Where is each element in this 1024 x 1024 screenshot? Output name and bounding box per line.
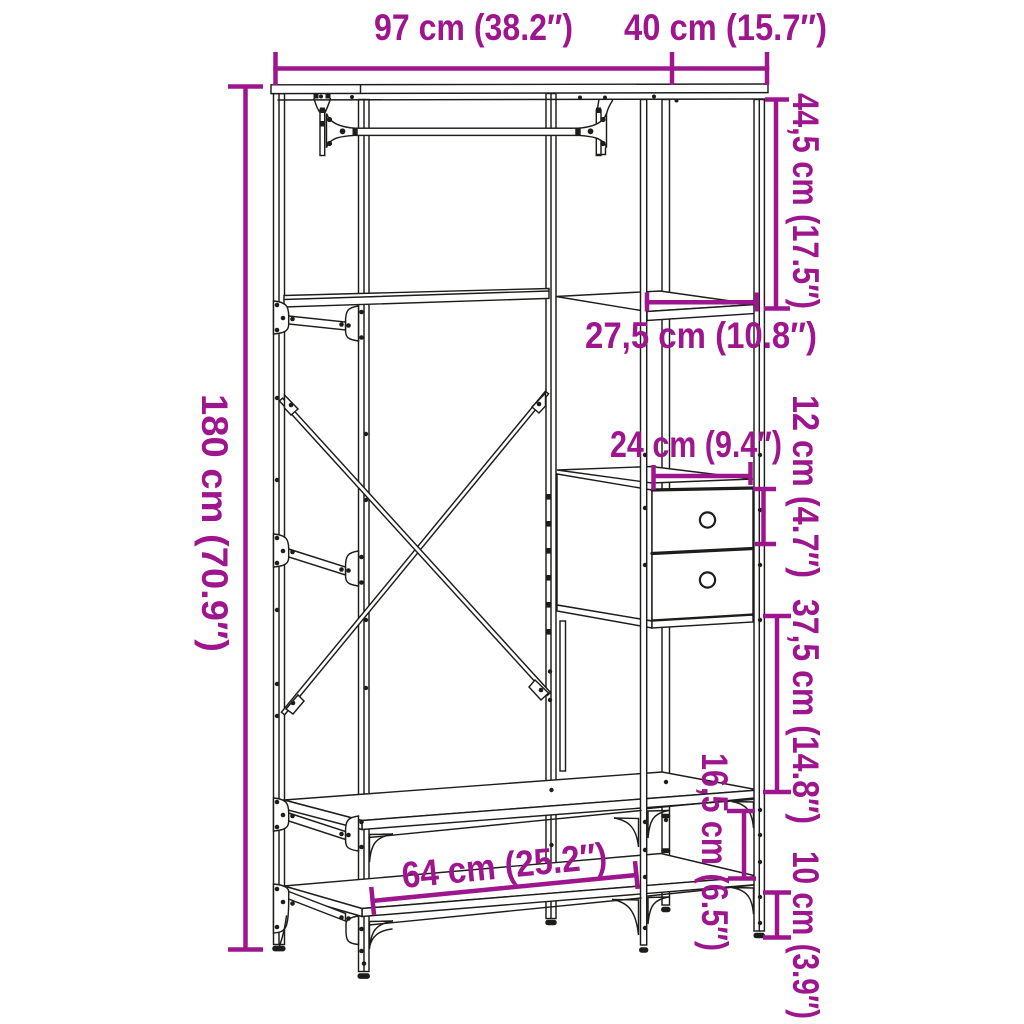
svg-text:97 cm (38.2″): 97 cm (38.2″) [374,7,573,48]
svg-text:24 cm (9.4″): 24 cm (9.4″) [610,424,782,465]
svg-text:27,5 cm (10.8″): 27,5 cm (10.8″) [585,315,817,356]
svg-text:180 cm (70.9″): 180 cm (70.9″) [194,394,235,652]
svg-text:10 cm (3.9″): 10 cm (3.9″) [785,851,826,1019]
svg-text:16,5 cm (6.5″): 16,5 cm (6.5″) [694,753,735,951]
svg-text:37,5 cm (14.8″): 37,5 cm (14.8″) [785,599,826,824]
svg-text:40 cm (15.7″): 40 cm (15.7″) [624,7,827,48]
svg-text:12 cm (4.7″): 12 cm (4.7″) [785,395,826,578]
svg-text:44,5 cm (17.5″): 44,5 cm (17.5″) [785,93,826,309]
